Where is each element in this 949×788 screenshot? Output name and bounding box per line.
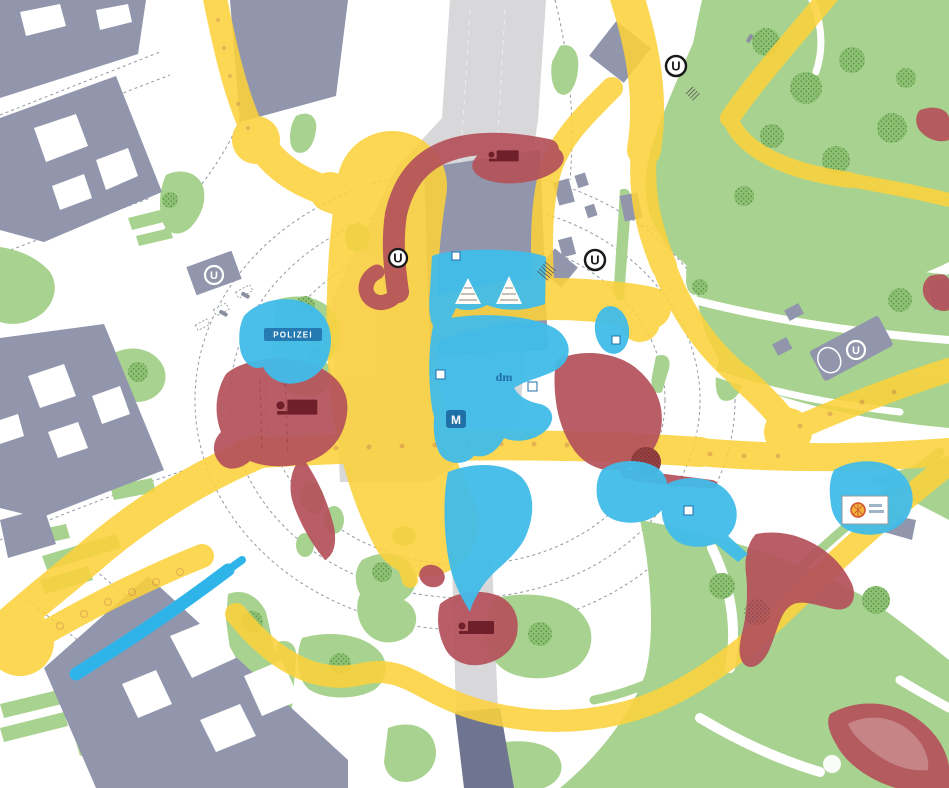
kiosk-icon [528, 382, 537, 391]
tree-icon [162, 192, 178, 208]
tree-icon [692, 279, 708, 295]
tree-icon [896, 68, 916, 88]
u-bahn-marker-icon: U [666, 56, 686, 76]
mcdonalds-logo-icon: M [446, 410, 466, 428]
tree-icon [790, 72, 822, 104]
kiosk-icon [452, 252, 460, 260]
city-map-canvas[interactable]: U U U U U POLIZEI dm M [0, 0, 949, 788]
svg-text:U: U [393, 251, 402, 266]
svg-text:U: U [590, 253, 599, 268]
u-bahn-marker-icon: U [389, 249, 407, 267]
tree-icon [528, 622, 552, 646]
tree-icon [888, 288, 912, 312]
dm-store-logo: dm [496, 370, 513, 384]
svg-text:M: M [451, 413, 461, 427]
tree-icon [839, 47, 865, 73]
tree-icon [760, 124, 784, 148]
svg-text:U: U [210, 270, 218, 282]
tree-icon [709, 573, 735, 599]
tree-icon [372, 562, 392, 582]
svg-text:U: U [852, 345, 860, 357]
svg-text:U: U [671, 59, 680, 74]
tree-icon [877, 113, 907, 143]
shell-station-icon [842, 496, 888, 524]
police-sign: POLIZEI [264, 328, 322, 341]
tree-icon [862, 586, 890, 614]
svg-text:POLIZEI: POLIZEI [273, 331, 313, 340]
tree-icon [128, 362, 148, 382]
kiosk-icon [612, 336, 620, 344]
u-bahn-marker-icon: U [585, 250, 605, 270]
kiosk-icon [436, 370, 445, 379]
tree-icon [734, 186, 754, 206]
kiosk-icon [684, 506, 693, 515]
